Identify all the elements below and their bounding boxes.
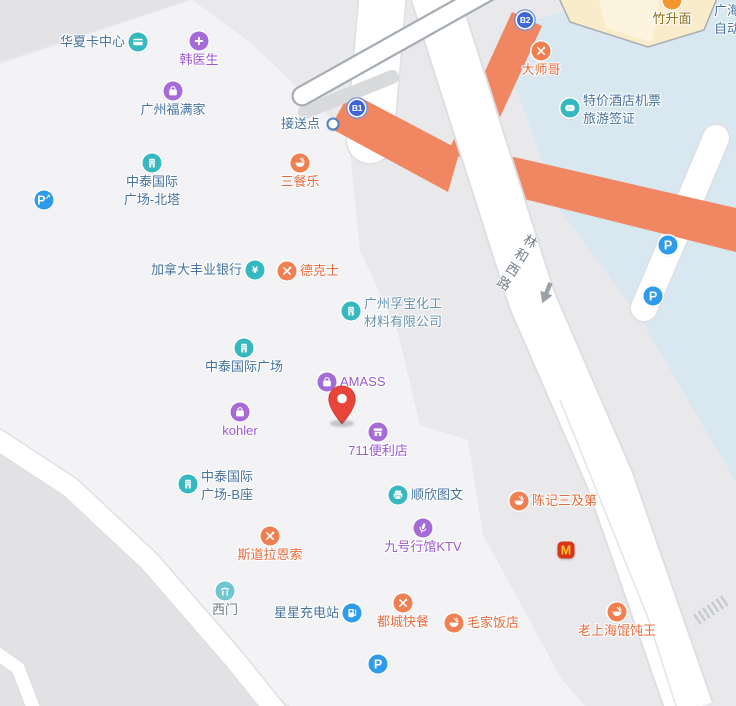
spot-dot-icon (327, 118, 340, 131)
parking-letter: P (664, 238, 672, 252)
map-viewport[interactable]: 林和西路 华夏卡中心韩医生广州福满家中泰国际广场-北塔P↗接送点B1三餐乐¥加拿… (0, 0, 736, 706)
poi-label-line: 自动 (714, 20, 736, 38)
printer-icon (389, 486, 408, 505)
poi-label: 广州福满家 (140, 101, 205, 119)
ev-charger-icon (343, 604, 362, 623)
rice-bowl-icon (445, 614, 464, 633)
poi-label: 韩医生 (179, 51, 218, 69)
poi-label-line: 广场-B座 (201, 486, 253, 504)
arrow-glyph: ↗ (45, 193, 51, 202)
gate-icon (216, 582, 235, 601)
poi-label: 陈记三及第 (532, 492, 597, 510)
poi-label-line: 三餐乐 (280, 173, 319, 191)
shopping-bag-icon (164, 82, 183, 101)
medical-cross-icon (190, 32, 209, 51)
poi-label-line: 中泰国际 (124, 173, 180, 191)
building-icon (342, 302, 361, 321)
yen-icon: ¥ (246, 261, 265, 280)
building-icon (143, 154, 162, 173)
poi-label: 西门 (212, 601, 238, 619)
parking-icon: P (659, 236, 678, 255)
poi-label-line: 大师哥 (521, 61, 560, 79)
poi-label-line: 竹升面 (652, 10, 691, 28)
poi-label: 接送点 (281, 115, 320, 133)
poi-label-line: 毛家饭店 (467, 614, 519, 632)
poi-label: 711便利店 (348, 442, 408, 460)
microphone-icon (414, 519, 433, 538)
poi-label-line: 接送点 (281, 115, 320, 133)
pin-shadow (330, 420, 354, 427)
shopping-bag-icon (231, 403, 250, 422)
rice-bowl-icon (291, 154, 310, 173)
poi-label-line: 711便利店 (348, 442, 408, 460)
poi-label-line: 西门 (212, 601, 238, 619)
poi-label: 星星充电站 (274, 604, 339, 622)
storefront-icon (369, 423, 388, 442)
poi-label-line: 中泰国际 (201, 468, 253, 486)
poi-label-line: 都城快餐 (377, 613, 429, 631)
poi-label: 斯道拉恩索 (237, 546, 302, 564)
poi-label: 广州孚宝化工材料有限公司 (364, 295, 442, 331)
svg-text:¥: ¥ (252, 266, 258, 276)
utensils-icon (261, 527, 280, 546)
parking-icon: P (644, 287, 663, 306)
poi-label-line: kohler (222, 422, 257, 440)
utensils-icon (532, 42, 551, 61)
utensils-icon (394, 594, 413, 613)
poi-label-line: 广州福满家 (140, 101, 205, 119)
poi-label: 竹升面 (652, 10, 691, 28)
card-icon (129, 33, 148, 52)
building-icon (179, 475, 198, 494)
parking-letter: P (374, 657, 382, 671)
poi-label-line: 广场-北塔 (124, 191, 180, 209)
poi-label: 广海自动 (714, 2, 736, 38)
poi-label: 特价酒店机票旅游签证 (583, 92, 661, 128)
subway-exit-icon: B2 (517, 12, 533, 28)
poi-label-line: 加拿大丰业银行 (151, 261, 242, 279)
poi-label-line: 旅游签证 (583, 110, 661, 128)
poi-label: 顺欣图文 (411, 486, 463, 504)
utensils-icon (278, 262, 297, 281)
rice-bowl-icon (608, 603, 627, 622)
poi-label-line: 广海 (714, 2, 736, 20)
rice-bowl-icon (510, 492, 529, 511)
poi-label-line: 顺欣图文 (411, 486, 463, 504)
poi-label: 华夏卡中心 (60, 33, 125, 51)
poi-label-line: 斯道拉恩索 (237, 546, 302, 564)
poi-label: 中泰国际广场 (205, 358, 283, 376)
parking-arrow-icon: P↗ (35, 191, 54, 210)
building-icon (235, 339, 254, 358)
poi-label-line: 星星充电站 (274, 604, 339, 622)
subway-exit-icon: B1 (349, 100, 365, 116)
poi-label-line: 老上海馄饨王 (578, 622, 656, 640)
poi-label: 中泰国际广场-B座 (201, 468, 253, 504)
poi-label-line: 材料有限公司 (364, 313, 442, 331)
poi-label-line: 特价酒店机票 (583, 92, 661, 110)
poi-label: 三餐乐 (280, 173, 319, 191)
poi-label-line: 韩医生 (179, 51, 218, 69)
poi-label: 加拿大丰业银行 (151, 261, 242, 279)
poi-label-line: 九号行馆KTV (384, 538, 461, 556)
poi-label: 毛家饭店 (467, 614, 519, 632)
poi-label-line: 德克士 (300, 262, 339, 280)
poi-label-line: 陈记三及第 (532, 492, 597, 510)
poi-label-line: 广州孚宝化工 (364, 295, 442, 313)
poi-label: 中泰国际广场-北塔 (124, 173, 180, 209)
poi-label: kohler (222, 422, 257, 440)
poi-label-line: 中泰国际广场 (205, 358, 283, 376)
mcdonalds-icon: M (558, 542, 575, 559)
parking-letter: P (649, 289, 657, 303)
poi-label: 德克士 (300, 262, 339, 280)
poi-label: 九号行馆KTV (384, 538, 461, 556)
poi-label-line: 华夏卡中心 (60, 33, 125, 51)
poi-label: 老上海馄饨王 (578, 622, 656, 640)
ticket-icon (561, 99, 580, 118)
poi-label: 大师哥 (521, 61, 560, 79)
poi-label: 都城快餐 (377, 613, 429, 631)
parking-icon: P (369, 655, 388, 674)
